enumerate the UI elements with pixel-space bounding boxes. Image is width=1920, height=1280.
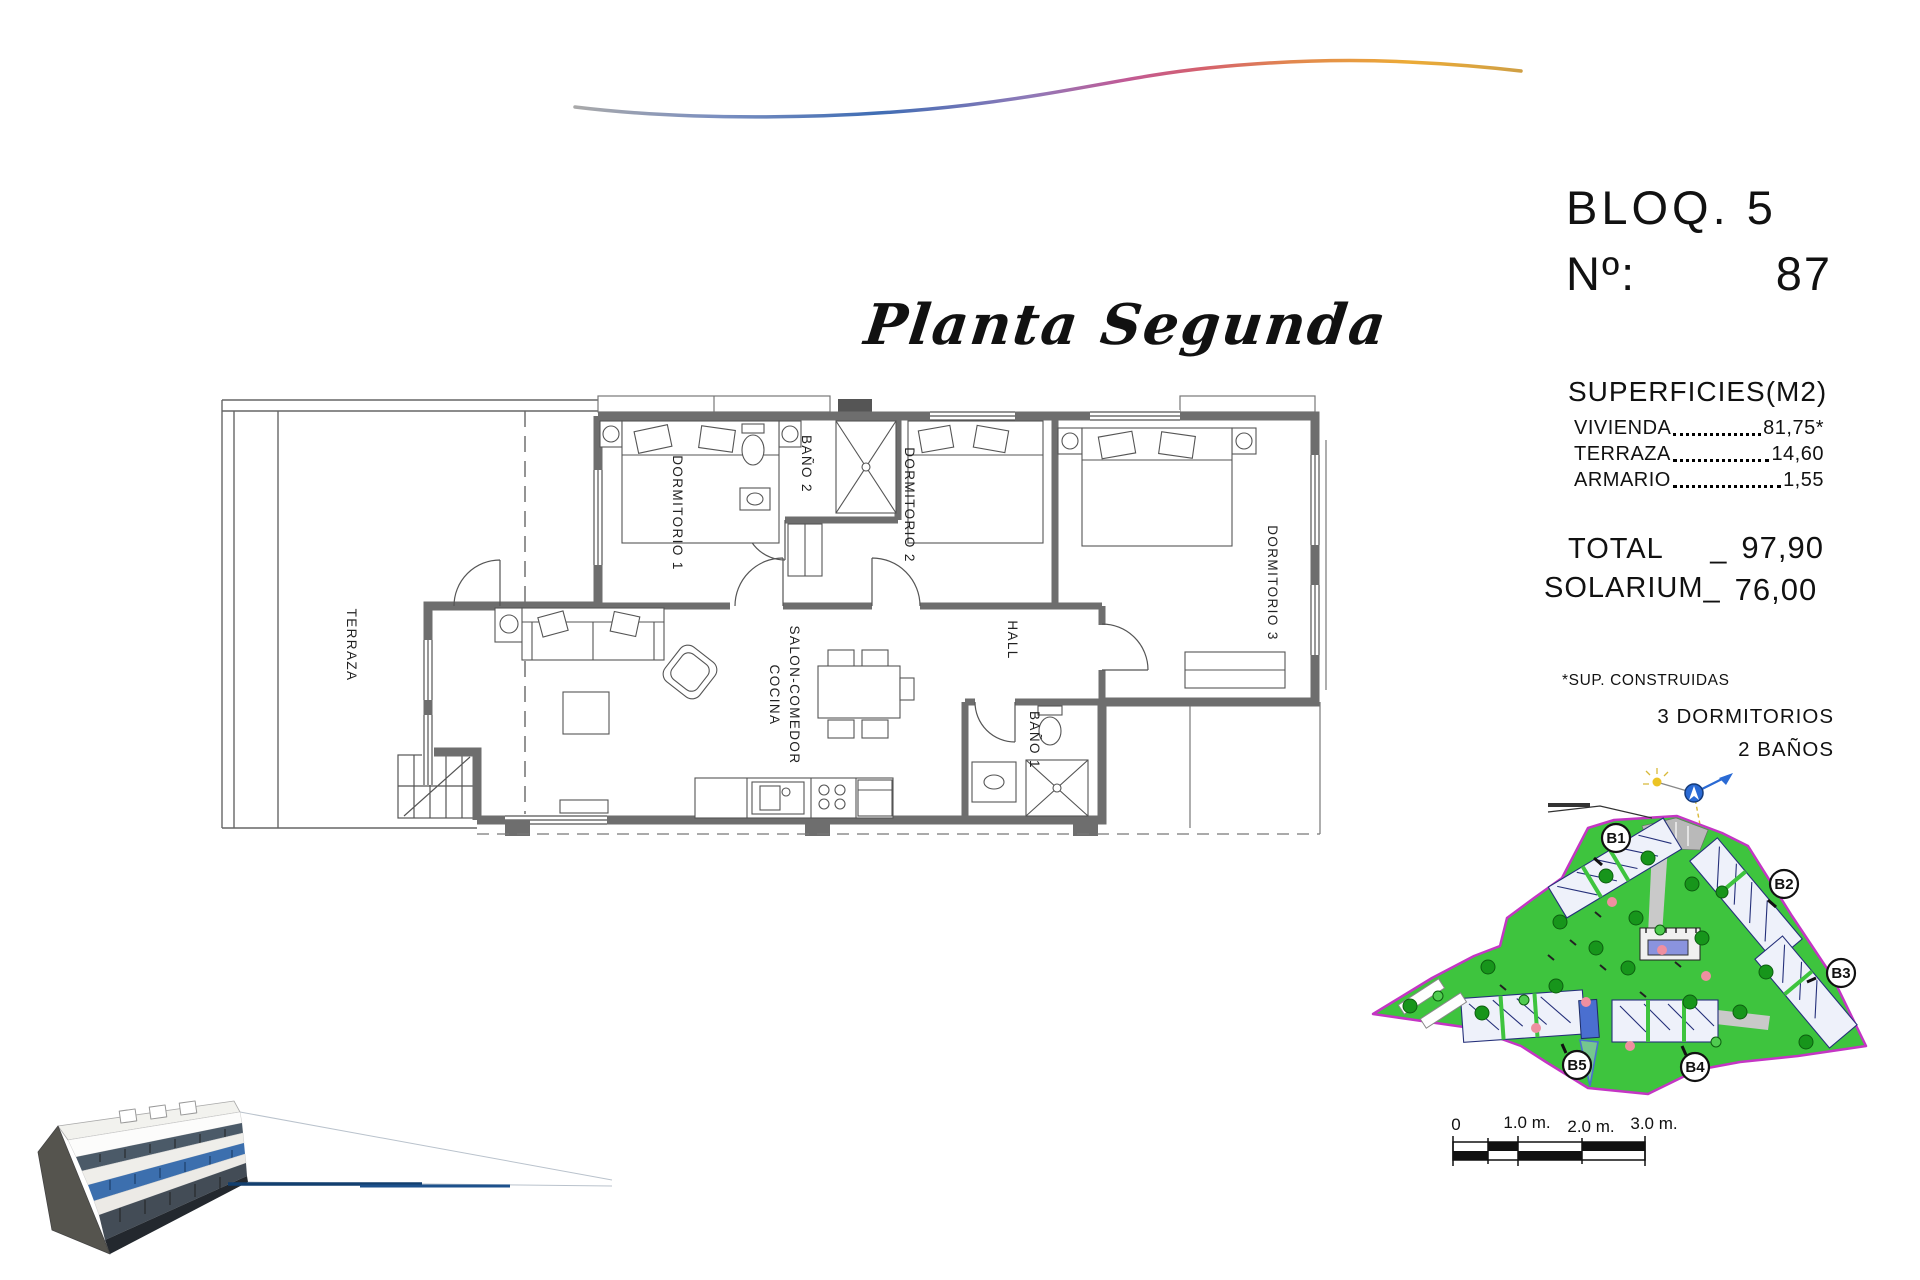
block-label-b1: B1 bbox=[1606, 830, 1625, 847]
total-separator: _ bbox=[1710, 533, 1727, 566]
room-label-salon-comedor: SALON-COMEDOR bbox=[787, 626, 802, 765]
surface-label: TERRAZA bbox=[1574, 443, 1671, 466]
furniture bbox=[495, 421, 1285, 818]
surface-row-terraza: TERRAZA 14,60 bbox=[1574, 440, 1824, 466]
building-render bbox=[38, 1101, 612, 1254]
room-label-dormitorio2: DORMITORIO 2 bbox=[902, 447, 917, 563]
surface-row-armario: ARMARIO 1,55 bbox=[1574, 466, 1824, 492]
scale-tick-1m: 1.0 m. bbox=[1503, 1113, 1550, 1132]
total-label: TOTAL bbox=[1568, 533, 1664, 566]
surface-value: 81,75* bbox=[1763, 417, 1824, 440]
room-label-hall: HALL bbox=[1005, 620, 1020, 659]
scale-tick-2m: 2.0 m. bbox=[1567, 1117, 1614, 1136]
floorplan-drawing: TERRAZA DORMITORIO 1 BAÑO 2 DORMITORIO 2… bbox=[222, 396, 1326, 836]
solarium-value: 76,00 bbox=[1735, 572, 1818, 608]
surfaces-heading: SUPERFICIES(M2) bbox=[1568, 376, 1827, 408]
surface-label: ARMARIO bbox=[1574, 469, 1671, 492]
plan-sheet: TERRAZA DORMITORIO 1 BAÑO 2 DORMITORIO 2… bbox=[0, 0, 1920, 1280]
surface-value: 14,60 bbox=[1771, 443, 1824, 466]
surface-label: VIVIENDA bbox=[1574, 417, 1671, 440]
scale-tick-3m: 3.0 m. bbox=[1630, 1114, 1677, 1133]
surface-row-vivienda: VIVIENDA 81,75* bbox=[1574, 414, 1824, 440]
total-value: 97,90 bbox=[1741, 530, 1824, 566]
solarium-row: SOLARIUM_ 76,00 bbox=[1544, 572, 1817, 608]
surfaces-footnote: *SUP. CONSTRUIDAS bbox=[1562, 672, 1730, 690]
dot-leader bbox=[1673, 433, 1761, 436]
pool bbox=[1640, 928, 1700, 960]
surface-value: 1,55 bbox=[1783, 469, 1824, 492]
room-label-bano2: BAÑO 2 bbox=[799, 435, 814, 493]
gradient-swoosh-decoration bbox=[575, 60, 1521, 116]
program-bathrooms: 2 BAÑOS bbox=[1558, 733, 1834, 766]
siteplan: B1 B2 B3 B4 B5 bbox=[1373, 768, 1866, 1094]
program-summary: 3 DORMITORIOS 2 BAÑOS bbox=[1558, 700, 1834, 766]
block-label-b4: B4 bbox=[1685, 1059, 1705, 1076]
total-row: TOTAL _ 97,90 bbox=[1568, 530, 1824, 566]
unit-number-row: Nº: 87 bbox=[1566, 246, 1838, 301]
room-label-dormitorio1: DORMITORIO 1 bbox=[670, 455, 685, 571]
unit-number-value: 87 bbox=[1776, 246, 1832, 301]
stairs bbox=[398, 755, 477, 818]
room-label-terraza: TERRAZA bbox=[344, 609, 359, 682]
unit-number-label: Nº: bbox=[1566, 246, 1636, 301]
room-label-dormitorio3: DORMITORIO 3 bbox=[1265, 525, 1280, 641]
block-label-b3: B3 bbox=[1831, 965, 1850, 982]
scale-tick-0: 0 bbox=[1451, 1115, 1460, 1134]
scale-bar: 0 1.0 m. 2.0 m. 3.0 m. bbox=[1451, 1113, 1677, 1166]
dot-leader bbox=[1673, 459, 1770, 462]
room-label-bano1: BAÑO 1 bbox=[1027, 711, 1042, 769]
block-label-b2: B2 bbox=[1774, 876, 1793, 893]
block-label-b5: B5 bbox=[1567, 1057, 1586, 1074]
room-label-cocina: COCINA bbox=[767, 665, 782, 726]
page-title: Planta Segunda bbox=[861, 292, 1391, 358]
block-heading: BLOQ. 5 bbox=[1566, 180, 1777, 235]
surfaces-table: VIVIENDA 81,75* TERRAZA 14,60 ARMARIO 1,… bbox=[1574, 414, 1824, 492]
dot-leader bbox=[1673, 485, 1781, 488]
solarium-label: SOLARIUM_ bbox=[1544, 572, 1721, 608]
program-bedrooms: 3 DORMITORIOS bbox=[1558, 700, 1834, 733]
